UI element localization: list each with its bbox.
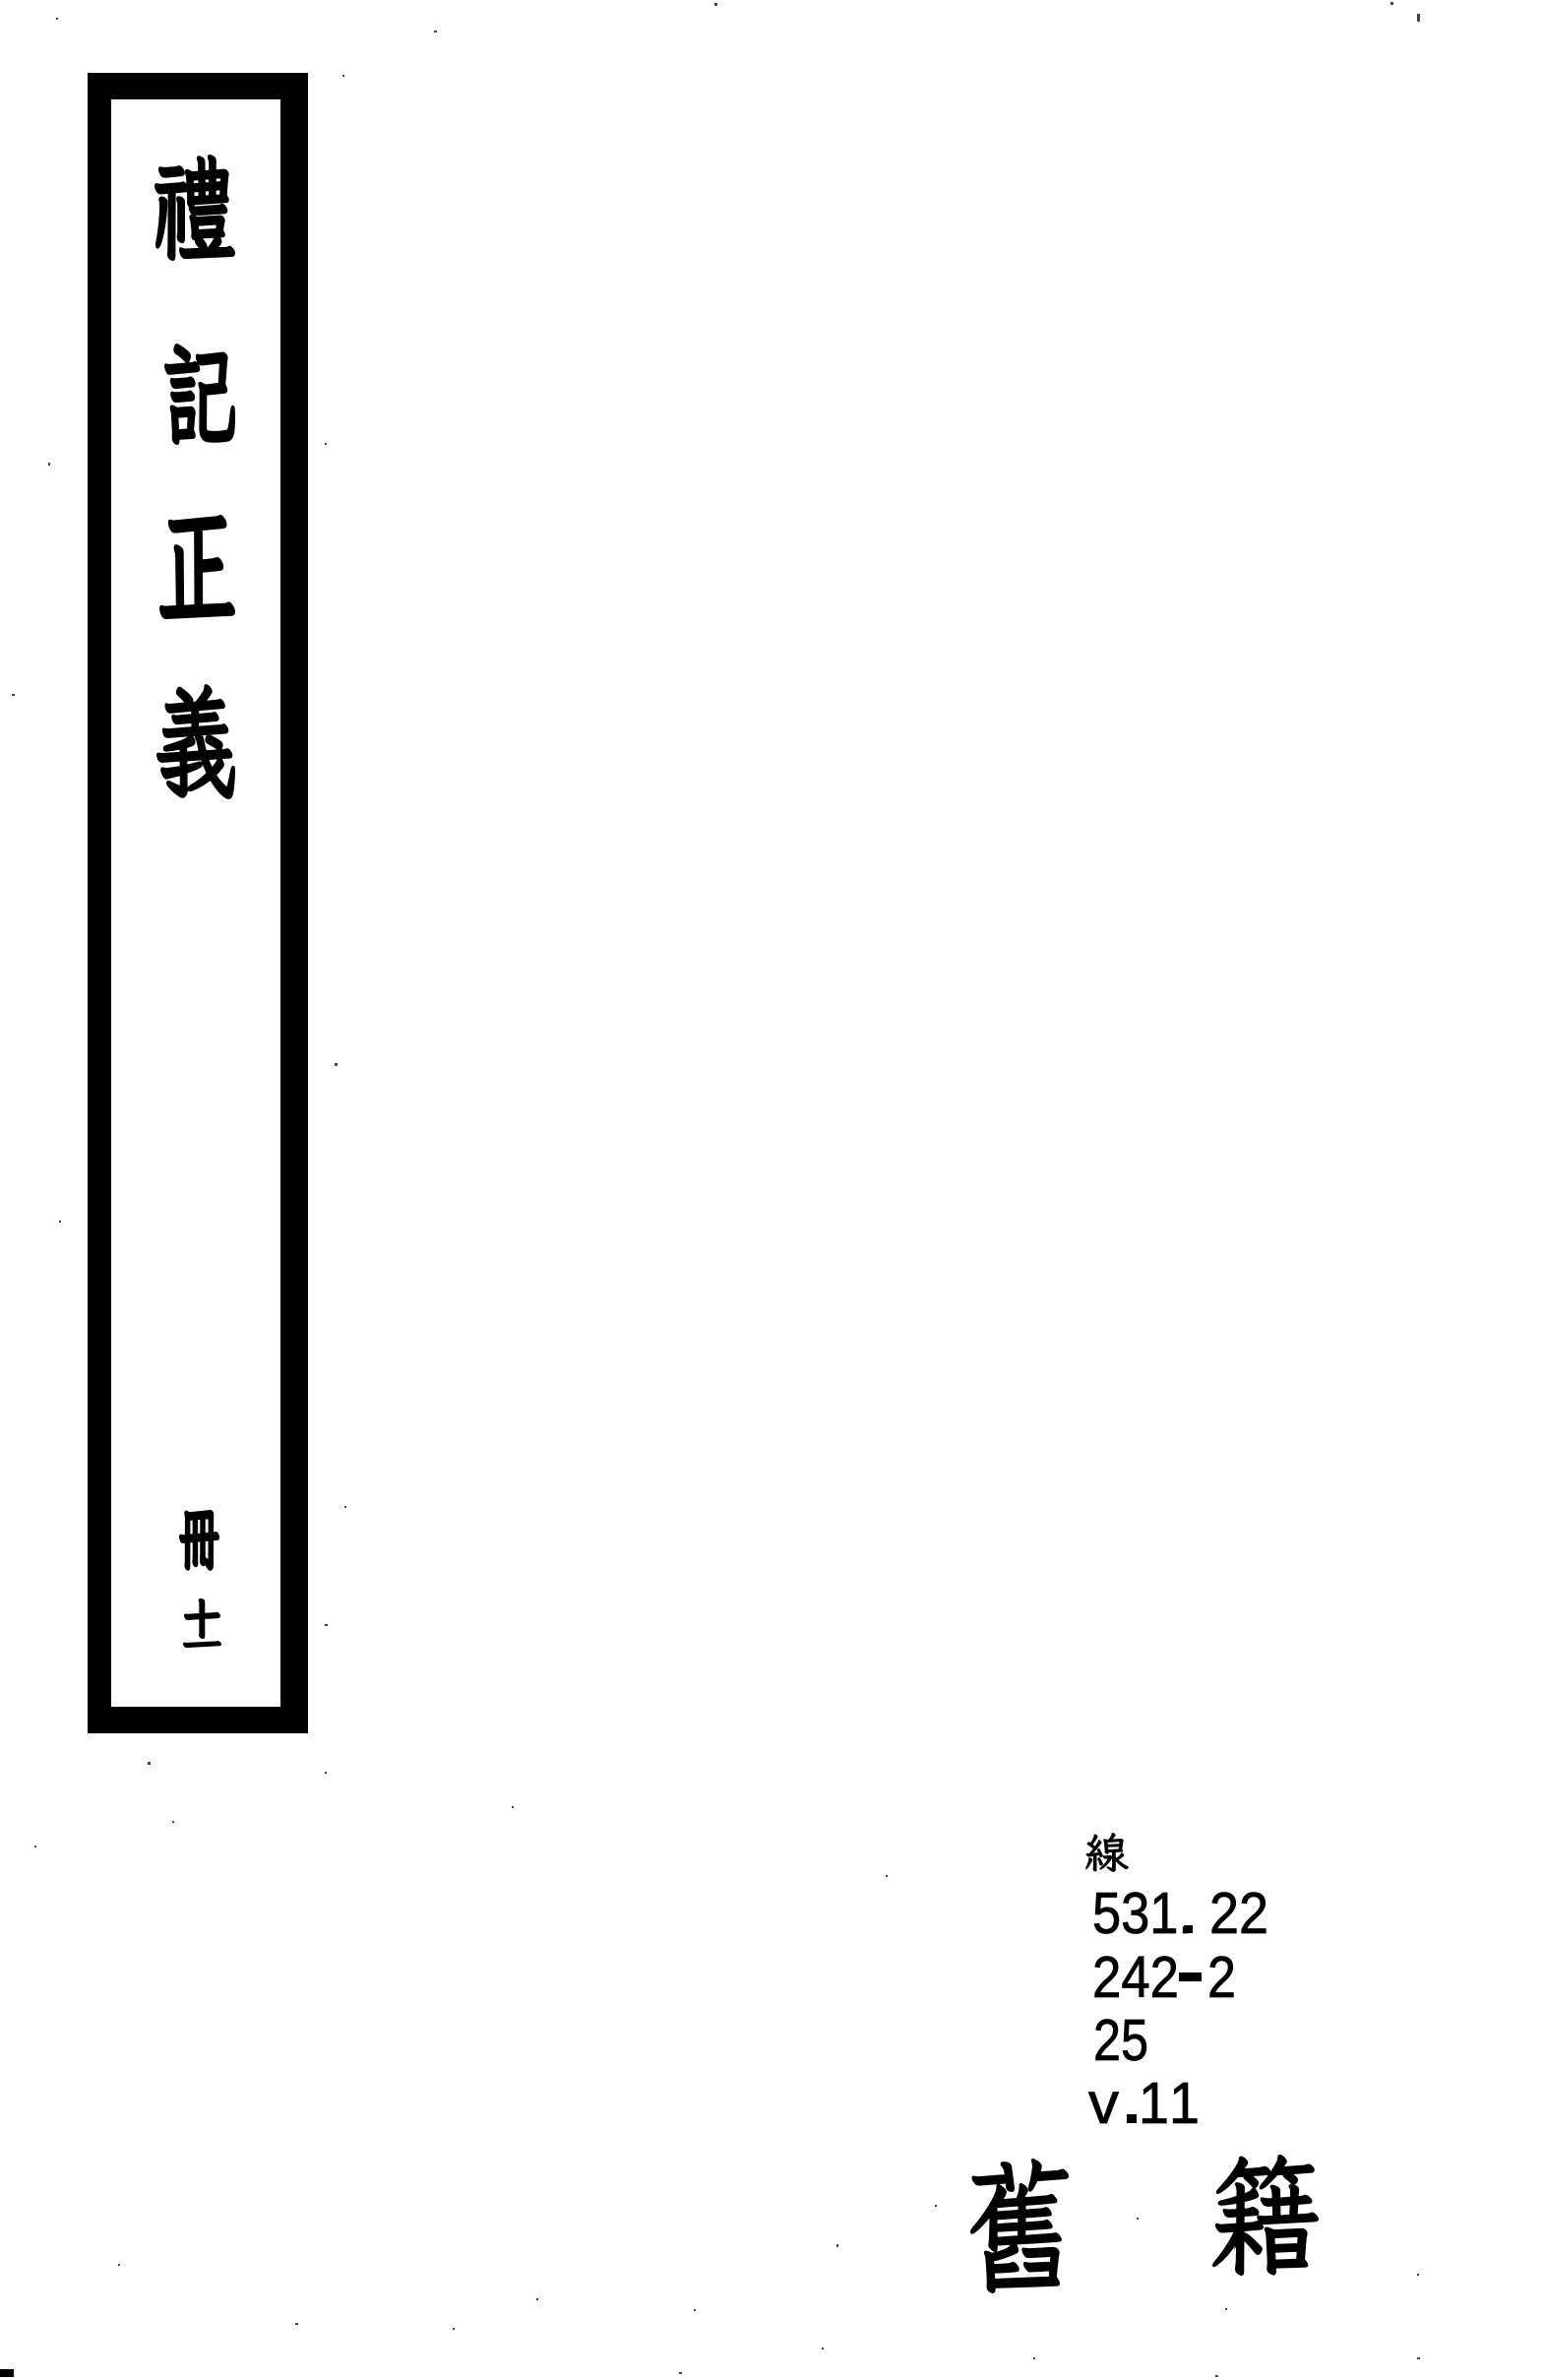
svg-text:242: 242 [1092, 1945, 1179, 2010]
svg-text:25: 25 [1093, 2008, 1148, 2073]
svg-text:1: 1 [1169, 2071, 1200, 2136]
svg-text:v: v [1088, 2071, 1120, 2136]
svg-text:2: 2 [1207, 1945, 1236, 2010]
svg-text:1: 1 [1139, 2071, 1169, 2136]
svg-text:22: 22 [1209, 1881, 1268, 1946]
svg-text:531.: 531. [1092, 1881, 1193, 1946]
